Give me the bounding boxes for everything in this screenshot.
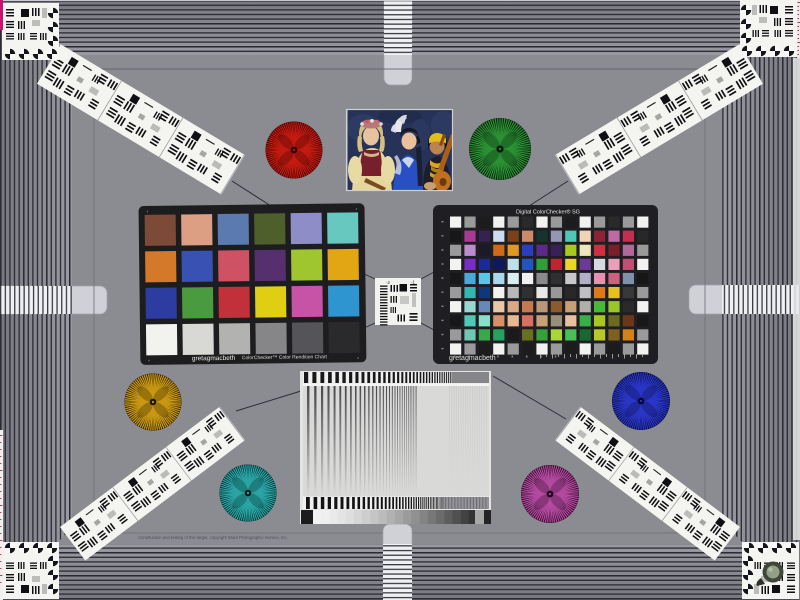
svg-text:-2: -2 bbox=[386, 280, 390, 285]
svg-text:ColorChecker™ Color Rendition: ColorChecker™ Color Rendition Chart bbox=[242, 354, 328, 361]
svg-text:gretagmacbeth: gretagmacbeth bbox=[449, 355, 496, 362]
svg-text:Digital ColorChecker® SG: Digital ColorChecker® SG bbox=[516, 209, 580, 216]
svg-text:gretagmacbeth: gretagmacbeth bbox=[192, 355, 236, 363]
svg-text:Construction and testing of th: Construction and testing of this target,… bbox=[138, 535, 288, 540]
svg-text:-1: -1 bbox=[411, 280, 415, 285]
